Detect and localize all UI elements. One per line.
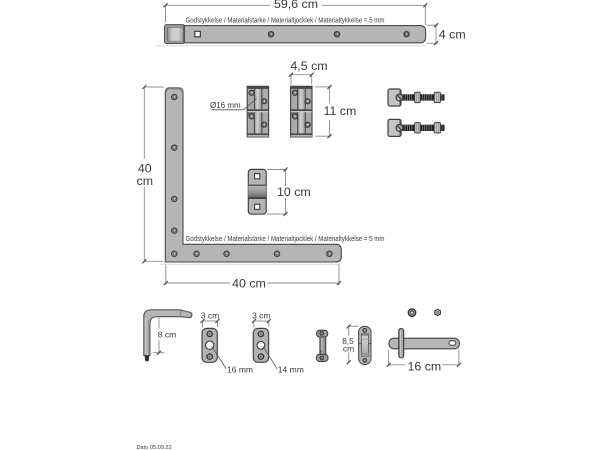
svg-text:16 mm: 16 mm bbox=[227, 364, 253, 374]
svg-text:16 cm: 16 cm bbox=[408, 359, 442, 373]
svg-text:cm: cm bbox=[343, 343, 354, 353]
svg-text:cm: cm bbox=[137, 174, 154, 188]
svg-text:Ø16 mm: Ø16 mm bbox=[210, 101, 241, 110]
svg-text:Godstykkelse / Materialstärke: Godstykkelse / Materialstärke / Material… bbox=[186, 15, 385, 24]
svg-text:8 cm: 8 cm bbox=[158, 330, 176, 340]
svg-text:40 cm: 40 cm bbox=[232, 276, 266, 290]
svg-text:14 mm: 14 mm bbox=[278, 364, 304, 374]
svg-text:3 cm: 3 cm bbox=[252, 311, 270, 321]
svg-text:11 cm: 11 cm bbox=[324, 104, 357, 118]
svg-text:59,6 cm: 59,6 cm bbox=[274, 0, 318, 11]
svg-text:Dato 05.09.22: Dato 05.09.22 bbox=[137, 445, 172, 450]
svg-text:4 cm: 4 cm bbox=[439, 27, 466, 41]
svg-text:10 cm: 10 cm bbox=[277, 185, 311, 199]
svg-text:3 cm: 3 cm bbox=[201, 311, 219, 321]
svg-text:4,5 cm: 4,5 cm bbox=[290, 59, 327, 73]
svg-text:Godstykkelse / Materialstärke: Godstykkelse / Materialstärke / Material… bbox=[186, 234, 385, 243]
